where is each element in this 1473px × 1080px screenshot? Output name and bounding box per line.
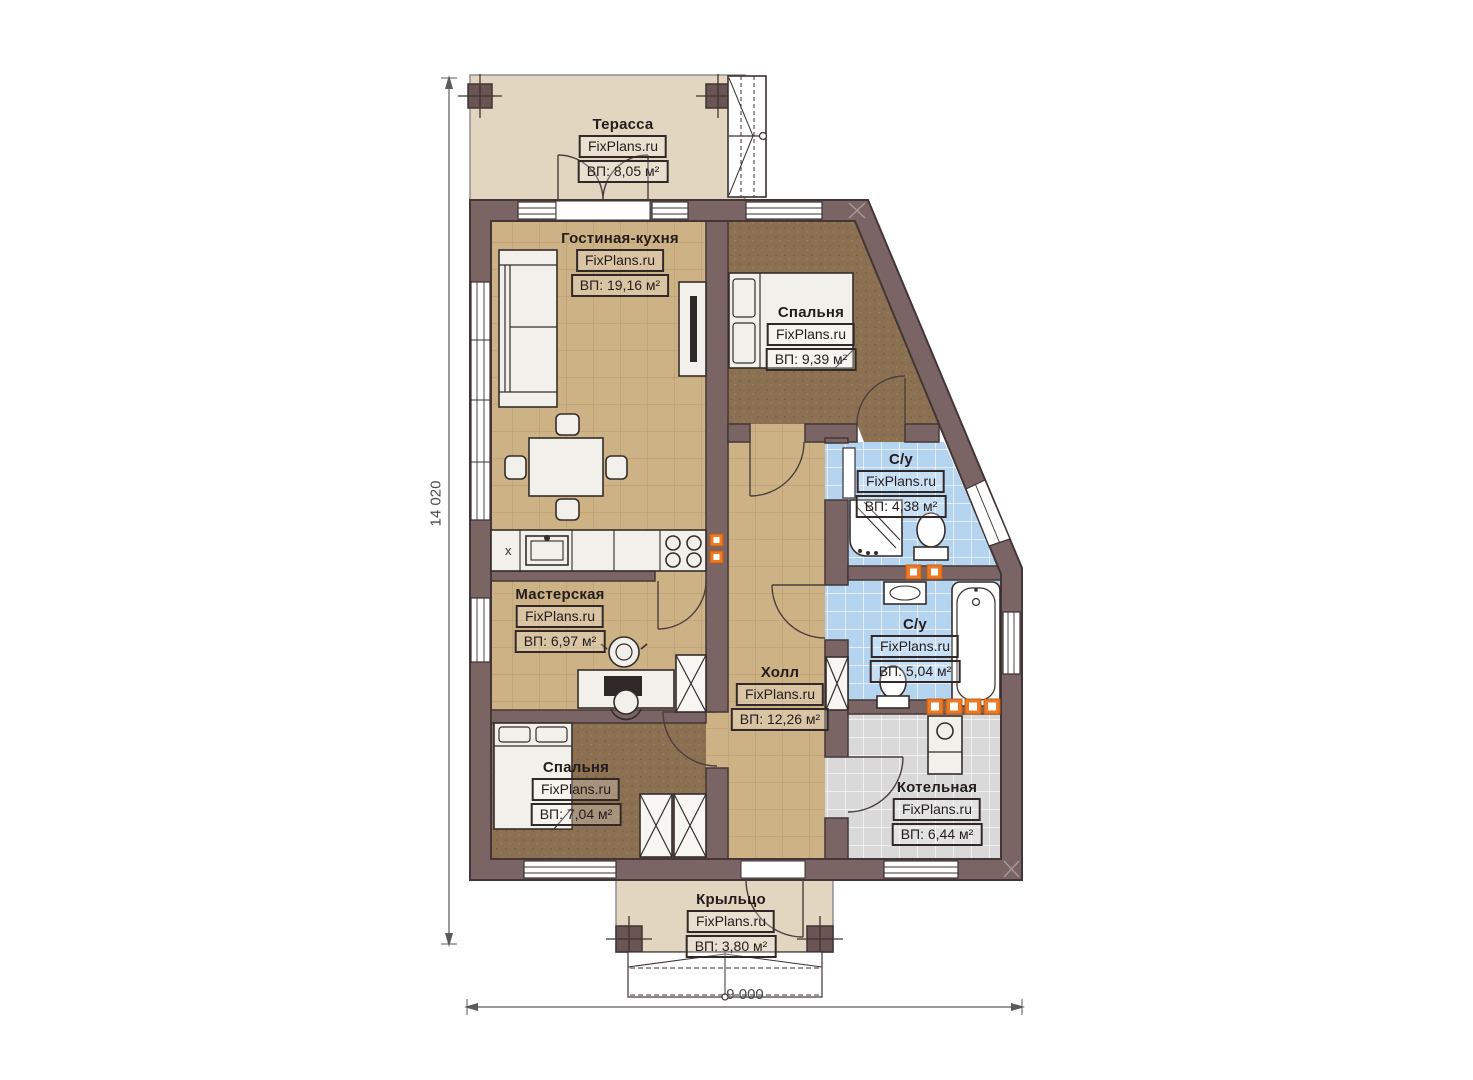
hall-floor xyxy=(728,442,825,859)
watermark: FixPlans.ru xyxy=(857,470,945,493)
room-label-bedroom-2: Спальня FixPlans.ru ВП: 7,04 м² xyxy=(531,759,622,826)
room-label-porch: Крыльцо FixPlans.ru ВП: 3,80 м² xyxy=(686,891,777,958)
threshold xyxy=(825,757,848,818)
threshold xyxy=(706,712,728,768)
room-label-bathroom-1: С/у FixPlans.ru ВП: 4,38 м² xyxy=(856,451,947,518)
room-name: Котельная xyxy=(892,779,983,796)
threshold xyxy=(825,585,848,640)
heating-indicator xyxy=(927,565,942,579)
chair xyxy=(606,456,627,479)
dimension-width: 9 000 xyxy=(700,986,790,1003)
toilet xyxy=(914,513,948,560)
heating-indicator xyxy=(710,534,723,546)
room-label-boiler-room: Котельная FixPlans.ru ВП: 6,44 м² xyxy=(892,779,983,846)
heating-indicator xyxy=(984,699,1000,714)
closet xyxy=(826,657,848,710)
chair xyxy=(505,456,526,479)
room-area: ВП: 7,04 м² xyxy=(531,803,622,826)
room-area: ВП: 12,26 м² xyxy=(731,708,829,731)
heating-indicator xyxy=(927,699,943,714)
room-name: Мастерская xyxy=(515,586,606,603)
closet xyxy=(640,794,672,857)
room-area: ВП: 3,80 м² xyxy=(686,935,777,958)
closet xyxy=(674,794,706,857)
watermark: FixPlans.ru xyxy=(893,798,981,821)
dimension-height: 14 020 xyxy=(428,459,445,549)
threshold xyxy=(857,424,912,442)
room-label-hall: Холл FixPlans.ru ВП: 12,26 м² xyxy=(731,664,829,731)
room-area: ВП: 4,38 м² xyxy=(856,495,947,518)
window xyxy=(524,861,616,878)
room-label-workshop: Мастерская FixPlans.ru ВП: 6,97 м² xyxy=(515,586,606,653)
watermark: FixPlans.ru xyxy=(516,605,604,628)
window xyxy=(746,202,822,219)
watermark: FixPlans.ru xyxy=(871,635,959,658)
room-label-living-kitchen: Гостиная-кухня FixPlans.ru ВП: 19,16 м² xyxy=(561,230,679,297)
watermark: FixPlans.ru xyxy=(736,683,824,706)
window xyxy=(884,861,958,878)
room-name: С/у xyxy=(870,616,961,633)
room-label-bathroom-2: С/у FixPlans.ru ВП: 5,04 м² xyxy=(870,616,961,683)
closet xyxy=(676,655,706,712)
threshold xyxy=(655,571,706,581)
watermark: FixPlans.ru xyxy=(767,323,855,346)
dining-table xyxy=(529,438,603,496)
room-name: Терасса xyxy=(578,116,669,133)
watermark: FixPlans.ru xyxy=(687,910,775,933)
terrace-door-opening xyxy=(556,201,650,220)
window xyxy=(1003,612,1020,674)
heating-indicator xyxy=(906,565,921,579)
sofa xyxy=(499,250,557,407)
heating-indicator xyxy=(710,551,723,563)
entrance-door-opening xyxy=(741,861,805,878)
room-area: ВП: 9,39 м² xyxy=(766,348,857,371)
window xyxy=(518,202,556,219)
floor-plan: х Терасса FixPlans.ru ВП: 8,05 м² Гостин… xyxy=(0,0,1473,1080)
room-name: С/у xyxy=(856,451,947,468)
chair xyxy=(556,414,579,435)
room-area: ВП: 6,97 м² xyxy=(515,630,606,653)
room-label-bedroom-1: Спальня FixPlans.ru ВП: 9,39 м² xyxy=(766,304,857,371)
chair xyxy=(556,499,579,520)
tv-stand xyxy=(679,282,706,376)
window xyxy=(471,598,490,662)
room-area: ВП: 8,05 м² xyxy=(578,160,669,183)
window xyxy=(471,282,490,520)
room-label-terrace: Терасса FixPlans.ru ВП: 8,05 м² xyxy=(578,116,669,183)
threshold xyxy=(750,424,805,442)
room-area: ВП: 6,44 м² xyxy=(892,823,983,846)
room-name: Спальня xyxy=(766,304,857,321)
watermark: FixPlans.ru xyxy=(576,249,664,272)
room-area: ВП: 19,16 м² xyxy=(571,274,669,297)
sink xyxy=(884,582,926,604)
room-name: Гостиная-кухня xyxy=(561,230,679,247)
counter-x-mark: х xyxy=(505,543,512,558)
watermark: FixPlans.ru xyxy=(532,778,620,801)
room-name: Крыльцо xyxy=(686,891,777,908)
room-name: Спальня xyxy=(531,759,622,776)
heating-indicator xyxy=(946,699,962,714)
boiler xyxy=(928,716,962,774)
room-area: ВП: 5,04 м² xyxy=(870,660,961,683)
watermark: FixPlans.ru xyxy=(579,135,667,158)
terrace-steps xyxy=(728,76,767,197)
heating-indicator xyxy=(965,699,981,714)
window xyxy=(652,202,688,219)
room-name: Холл xyxy=(731,664,829,681)
